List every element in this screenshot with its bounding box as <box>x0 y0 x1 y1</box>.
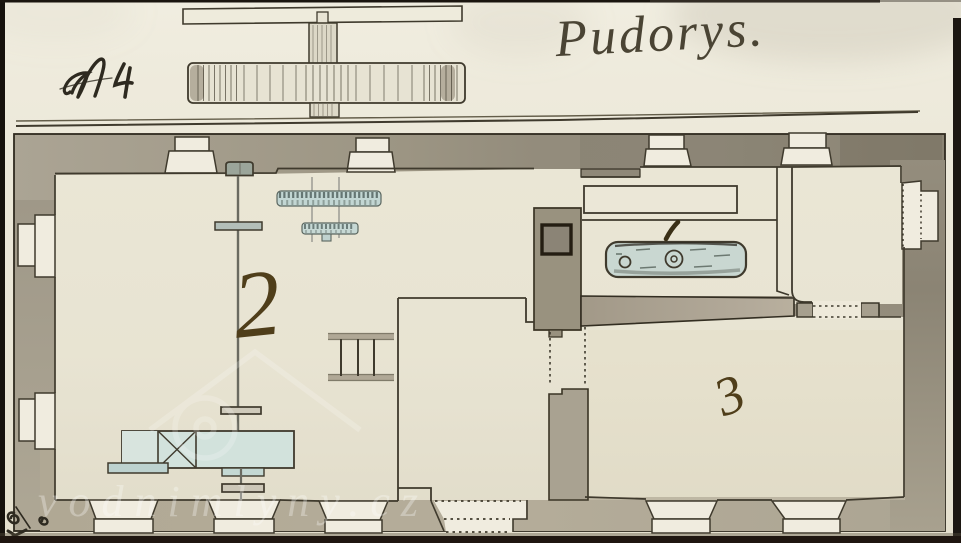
svg-text:vodnimlyny.cz: vodnimlyny.cz <box>38 477 429 526</box>
svg-text:Pudorys.: Pudorys. <box>553 0 767 68</box>
